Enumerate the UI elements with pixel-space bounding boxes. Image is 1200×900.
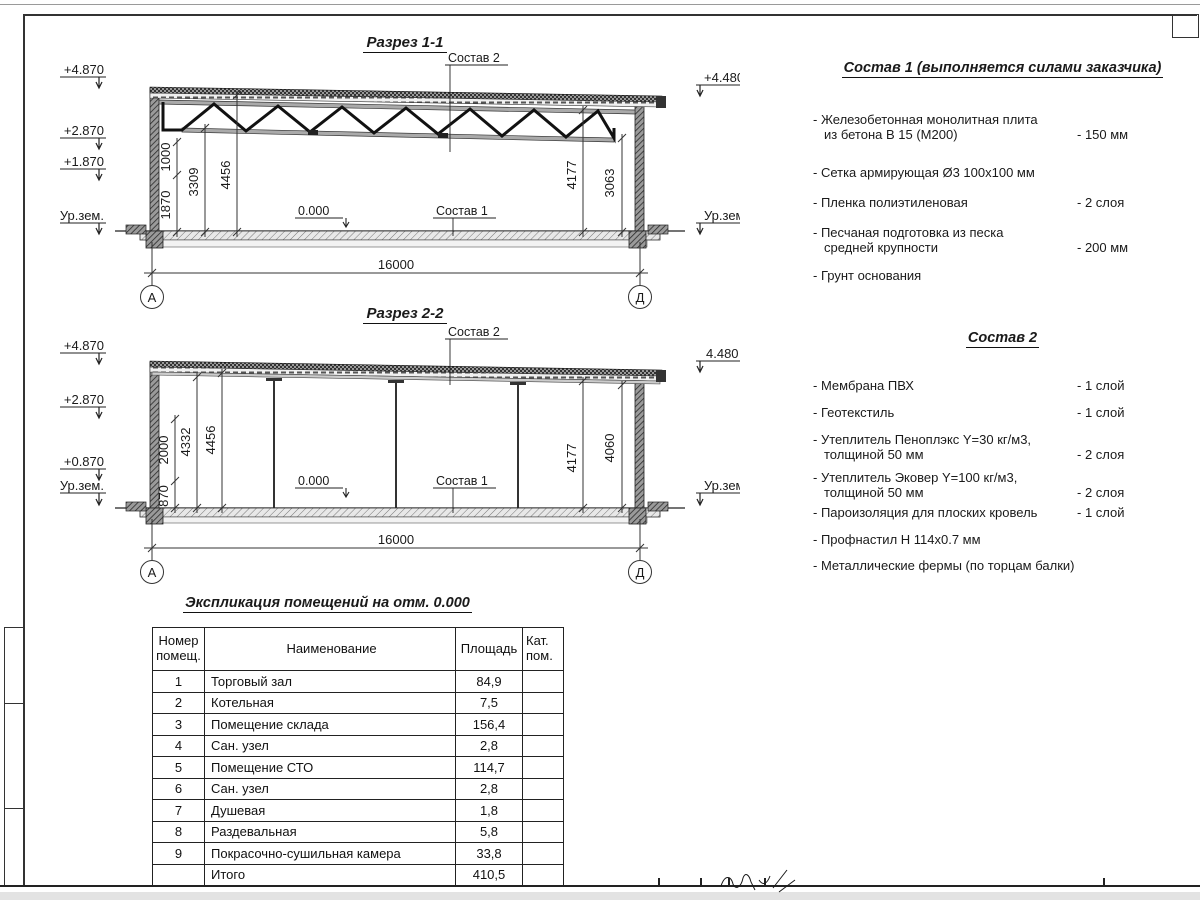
drawing-sheet: Разрез 1-1 Разрез 2-2 +4.870 +2.870: [0, 0, 1200, 900]
material-item: - Геотекстиль - 1 слой: [813, 405, 1200, 420]
sostav1-list-title: Состав 1 (выполняется силами заказчика): [805, 61, 1200, 78]
elevation-label: +2.870: [64, 123, 104, 138]
frame-corner-box: [1172, 14, 1199, 38]
right-footing: [629, 231, 646, 248]
dimension-label: 4332: [178, 428, 193, 457]
material-item: - Песчаная подготовка из пескасредней кр…: [813, 225, 1200, 255]
roof-edge-cap: [656, 96, 666, 108]
col-header-area: Площадь: [456, 628, 523, 671]
material-item: - Пароизоляция для плоских кровель - 1 с…: [813, 505, 1200, 520]
dimension-label: 870: [156, 485, 171, 507]
frame-left-border: [23, 14, 25, 886]
col-header-name: Наименование: [205, 628, 456, 671]
truss-gusset: [438, 133, 448, 138]
table-row: 3Помещение склада156,4: [153, 714, 564, 736]
down-arrow-icon: [697, 361, 703, 372]
zero-level-label: 0.000: [295, 204, 349, 227]
ground-level-label: Ур.зем.: [704, 478, 740, 493]
frame-margin-boxes-line: [4, 627, 5, 885]
material-thickness: - 2 слоя: [1077, 485, 1124, 500]
material-item: - Утеплитель Пеноплэкс Y=30 кг/м3,толщин…: [813, 432, 1200, 462]
dimension-label: 4177: [564, 444, 579, 473]
col-header-category: Кат. пом.: [523, 628, 564, 671]
table-row: 9Покрасочно-сушильная камера33,8: [153, 843, 564, 865]
left-footing: [146, 231, 163, 248]
elevation-label: +4.870: [64, 338, 104, 353]
dimension-label: 1870: [158, 191, 173, 220]
left-apron: [126, 502, 146, 511]
axis-label: Д: [636, 565, 645, 580]
down-arrow-icon: [96, 407, 102, 418]
elevation-mark: +4.480: [696, 70, 740, 96]
floor-bedding: [153, 240, 647, 247]
table-row: 7Душевая1,8: [153, 800, 564, 822]
border-tick: [658, 878, 660, 885]
width-dimension-label: 16000: [378, 532, 414, 547]
table-row: 8Раздевальная5,8: [153, 821, 564, 843]
elevation-mark: 4.480: [696, 346, 740, 372]
border-tick: [1103, 878, 1105, 885]
room-schedule-table: Номер помещ. Наименование Площадь Кат. п…: [152, 627, 564, 886]
sostav2-label: Состав 2: [448, 51, 500, 65]
down-arrow-icon: [96, 77, 102, 88]
sostav2-label: Состав 2: [448, 325, 500, 339]
table-row: 2Котельная7,5: [153, 692, 564, 714]
elevation-mark: +0.870: [60, 454, 106, 480]
material-item: - Утеплитель Эковер Y=100 кг/м3,толщиной…: [813, 470, 1200, 500]
ground-level-label: Ур.зем.: [704, 208, 740, 223]
elevation-label: +0.870: [64, 454, 104, 469]
dimension-label: 4060: [602, 434, 617, 463]
down-arrow-icon: [697, 85, 703, 96]
section-1-1-drawing: +4.870 +2.870 +1.870 Ур.зем. +4.480 Ур.з…: [40, 30, 740, 315]
table-header-row: Номер помещ. Наименование Площадь Кат. п…: [153, 628, 564, 671]
handwritten-mark: [715, 864, 815, 898]
table-row: 5Помещение СТО114,7: [153, 757, 564, 779]
elevation-mark: Ур.зем.: [60, 208, 106, 234]
right-apron: [648, 225, 668, 234]
sheet-bottom-strip: [0, 892, 1200, 900]
material-thickness: - 1 слой: [1077, 405, 1125, 420]
dimension-label: 1000: [158, 143, 173, 172]
elevation-label: +4.480: [704, 70, 740, 85]
down-arrow-icon: [343, 488, 349, 497]
material-thickness: - 2 слоя: [1077, 447, 1124, 462]
truss-gusset: [308, 130, 318, 135]
material-thickness: - 1 слой: [1077, 378, 1125, 393]
elevation-mark: +4.870: [60, 62, 106, 88]
elevation-mark: +1.870: [60, 154, 106, 180]
material-item: - Сетка армирующая Ø3 100х100 мм: [813, 165, 1200, 180]
elevation-label: +1.870: [64, 154, 104, 169]
left-apron: [126, 225, 146, 234]
elevation-mark: +2.870: [60, 392, 106, 418]
elevation-mark: Ур.зем.: [696, 478, 740, 505]
dimension-label: 3063: [602, 169, 617, 198]
frame-top-border: [23, 14, 1197, 16]
table-row: 1Торговый зал84,9: [153, 671, 564, 693]
table-row: 4Сан. узел2,8: [153, 735, 564, 757]
right-wall: [635, 372, 644, 508]
down-arrow-icon: [96, 169, 102, 180]
frame-margin-box-divider: [4, 703, 23, 704]
material-item: - Пленка полиэтиленовая - 2 слоя: [813, 195, 1200, 210]
zero-label: 0.000: [298, 204, 329, 218]
material-item: - Металлические фермы (по торцам балки): [813, 558, 1200, 573]
sostav2-list-title: Состав 2: [805, 331, 1200, 348]
width-dimension-label: 16000: [378, 257, 414, 272]
frame-margin-box-divider: [4, 627, 23, 628]
ground-level-label: Ур.зем.: [60, 208, 104, 223]
right-wall: [635, 98, 644, 232]
down-arrow-icon: [697, 223, 703, 234]
zero-level-label: 0.000: [295, 474, 349, 497]
material-item: - Профнастил Н 114х0.7 мм: [813, 532, 1200, 547]
material-thickness: - 2 слоя: [1077, 195, 1124, 210]
material-item: - Железобетонная монолитная плитаиз бето…: [813, 112, 1200, 142]
floor-bedding: [153, 517, 647, 523]
elevation-mark: +2.870: [60, 123, 106, 149]
dimension-label: 2000: [156, 436, 171, 465]
sheet-top-edge-line: [0, 4, 1200, 5]
frame-margin-box-divider: [4, 808, 23, 809]
down-arrow-icon: [697, 493, 703, 505]
border-tick: [700, 878, 702, 885]
room-schedule-title: Экспликация помещений на отм. 0.000: [150, 595, 505, 613]
table-row: 6Сан. узел2,8: [153, 778, 564, 800]
down-arrow-icon: [343, 218, 349, 227]
elevation-label: +2.870: [64, 392, 104, 407]
material-thickness: - 150 мм: [1077, 127, 1128, 142]
left-footing: [146, 508, 163, 524]
elevation-mark: +4.870: [60, 338, 106, 364]
right-apron: [648, 502, 668, 511]
sostav1-label: Состав 1: [436, 474, 488, 488]
right-footing: [629, 508, 646, 524]
down-arrow-icon: [96, 493, 102, 505]
elevation-mark: Ур.зем.: [696, 208, 740, 234]
zero-label: 0.000: [298, 474, 329, 488]
material-thickness: - 200 мм: [1077, 240, 1128, 255]
axis-label: А: [148, 565, 157, 580]
dimension-label: 3309: [186, 168, 201, 197]
material-item: - Грунт основания: [813, 268, 1200, 283]
material-item: - Мембрана ПВХ - 1 слой: [813, 378, 1200, 393]
section-2-2-drawing: +4.870 +2.870 +0.870 Ур.зем. 4.480 Ур.зе…: [40, 300, 740, 590]
elevation-label: 4.480: [706, 346, 739, 361]
sostav1-leader: Состав 1: [433, 474, 496, 513]
down-arrow-icon: [96, 223, 102, 234]
elevation-mark: Ур.зем.: [60, 478, 106, 505]
col-header-number: Номер помещ.: [153, 628, 205, 671]
dimension-lines: [171, 369, 626, 513]
material-thickness: - 1 слой: [1077, 505, 1125, 520]
down-arrow-icon: [96, 138, 102, 149]
dimension-label: 4456: [203, 426, 218, 455]
dimension-label: 4456: [218, 161, 233, 190]
ground-level-label: Ур.зем.: [60, 478, 104, 493]
sostav1-label: Состав 1: [436, 204, 488, 218]
table-total-row: Итого410,5: [153, 864, 564, 886]
down-arrow-icon: [96, 353, 102, 364]
dimension-label: 4177: [564, 161, 579, 190]
elevation-label: +4.870: [64, 62, 104, 77]
roof-edge-cap: [656, 370, 666, 382]
